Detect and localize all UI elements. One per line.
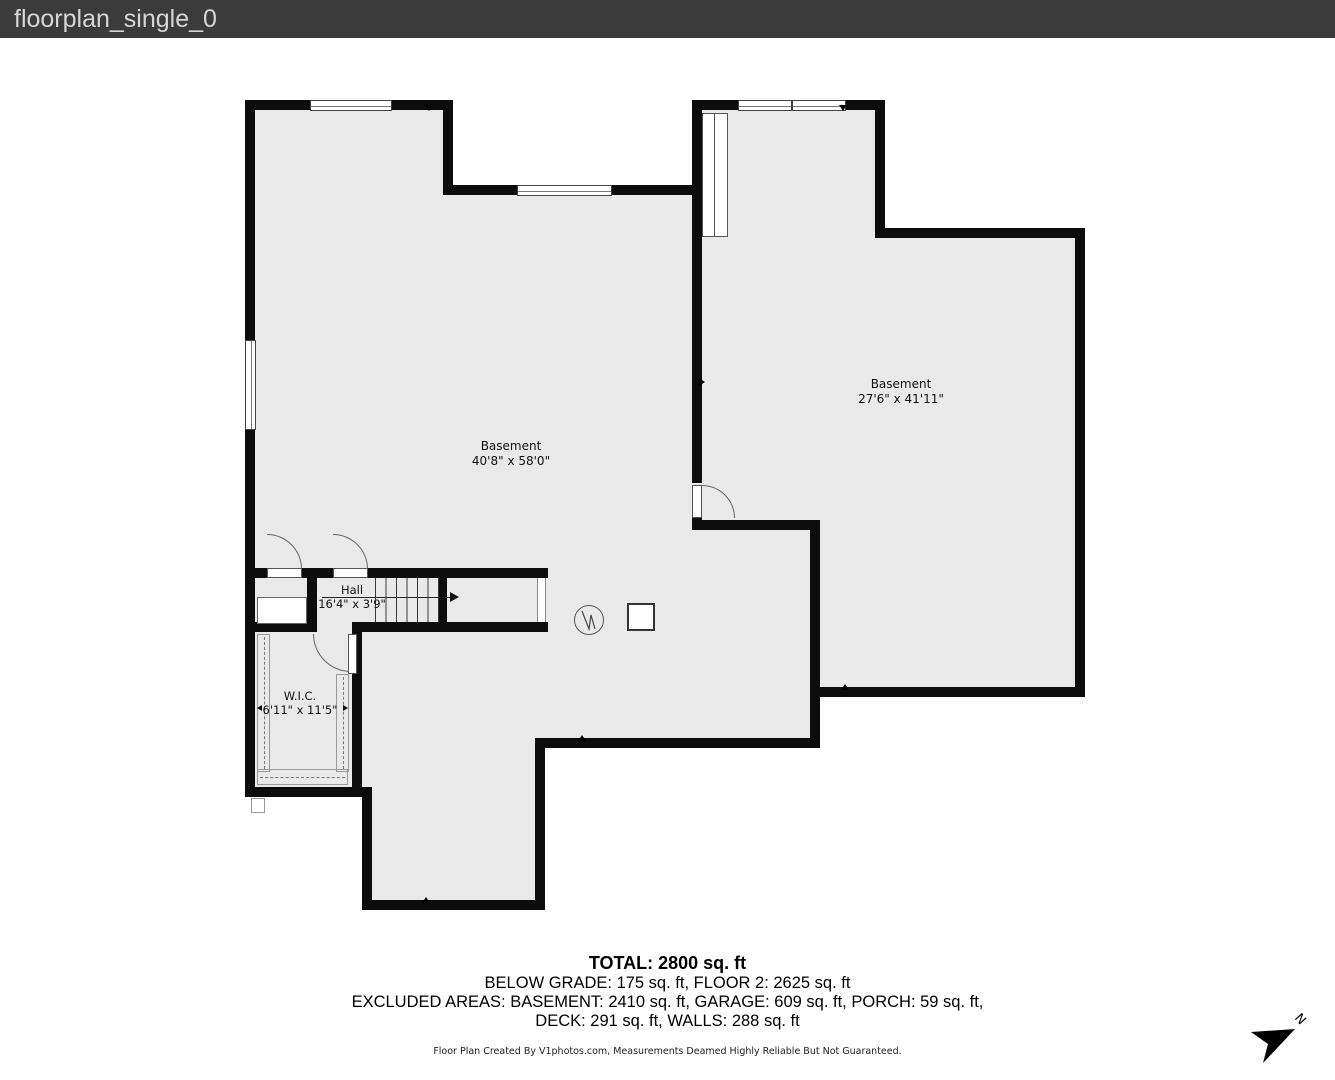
closet-shelf (336, 674, 349, 772)
closet-fixture (257, 597, 307, 624)
furnace-icon (627, 603, 655, 631)
wall-tick-icon (841, 684, 849, 690)
page-title: floorplan_single_0 (14, 0, 217, 38)
closet-shelf (257, 769, 348, 785)
floorplan-viewer: floorplan_single_0 (0, 0, 1335, 1080)
window-icon (310, 100, 392, 111)
wall (438, 572, 447, 627)
dimension-arrow-icon (257, 705, 262, 711)
summary-total: TOTAL: 2800 sq. ft (0, 953, 1335, 974)
header-bar: floorplan_single_0 (0, 0, 1335, 38)
room-dimensions: 6'11" x 11'5" (263, 703, 338, 717)
floor-area (250, 105, 453, 195)
window-icon (738, 100, 792, 111)
room-label-wic: W.I.C. 6'11" x 11'5" (263, 689, 338, 717)
stair-direction-arrow-icon (450, 592, 459, 602)
window-icon (792, 100, 846, 111)
wall (1075, 228, 1085, 697)
summary-deck-walls: DECK: 291 sq. ft, WALLS: 288 sq. ft (0, 1012, 1335, 1031)
wall (245, 430, 255, 797)
room-label-basement-left: Basement 40'8" x 58'0" (472, 439, 550, 469)
room-name: Basement (858, 377, 944, 392)
door-leaf (267, 568, 302, 578)
wall (875, 100, 885, 238)
north-arrow-icon: N (1243, 1006, 1323, 1070)
wall-tick-icon (839, 105, 847, 111)
room-name: Basement (472, 439, 550, 454)
water-heater-zigzag-icon (574, 605, 604, 635)
room-label-hall: Hall 16'4" x 3'9" (318, 583, 386, 611)
wall (810, 687, 1085, 697)
wall (352, 622, 548, 632)
window-icon (517, 185, 612, 196)
dimension-arrow-icon (343, 705, 348, 711)
wall (875, 228, 1085, 238)
wall (612, 185, 702, 195)
room-dimensions: 40'8" x 58'0" (472, 454, 550, 469)
wall (245, 100, 255, 345)
summary-excluded-areas: EXCLUDED AREAS: BASEMENT: 2410 sq. ft, G… (0, 993, 1335, 1012)
floor-area (697, 228, 1085, 692)
room-dimensions: 16'4" x 3'9" (318, 597, 386, 611)
door-leaf (333, 568, 368, 578)
room-name: Hall (318, 583, 386, 597)
area-summary: TOTAL: 2800 sq. ft BELOW GRADE: 175 sq. … (0, 953, 1335, 1031)
wall (810, 520, 820, 748)
room-label-basement-right: Basement 27'6" x 41'11" (858, 377, 944, 407)
disclaimer-text: Floor Plan Created By V1photos.com, Meas… (0, 1046, 1335, 1057)
wall (362, 787, 372, 910)
door-leaf (348, 634, 357, 674)
wall-tick-icon (422, 897, 430, 903)
north-arrow-shape (1243, 1006, 1323, 1070)
wall-tick-icon (699, 378, 705, 386)
window-icon (245, 340, 256, 430)
wall (245, 568, 267, 578)
summary-below-grade: BELOW GRADE: 175 sq. ft, FLOOR 2: 2625 s… (0, 974, 1335, 993)
chimney-chase (702, 113, 728, 237)
wall-tick-icon (578, 735, 586, 741)
wall (535, 738, 545, 910)
wall (368, 568, 548, 578)
wall-opening (537, 578, 546, 622)
wall (443, 100, 453, 195)
wall (245, 787, 372, 797)
room-dimensions: 27'6" x 41'11" (858, 392, 944, 407)
floor-area (545, 568, 697, 743)
wall-tick-icon (425, 105, 433, 111)
window-well (251, 798, 265, 813)
wall (692, 100, 740, 110)
floor-area (250, 190, 702, 573)
wall (443, 185, 517, 195)
door-leaf (692, 485, 702, 518)
wall (307, 568, 317, 632)
room-name: W.I.C. (263, 689, 338, 703)
wall (362, 900, 545, 910)
wall (692, 520, 820, 530)
wall (692, 100, 702, 483)
